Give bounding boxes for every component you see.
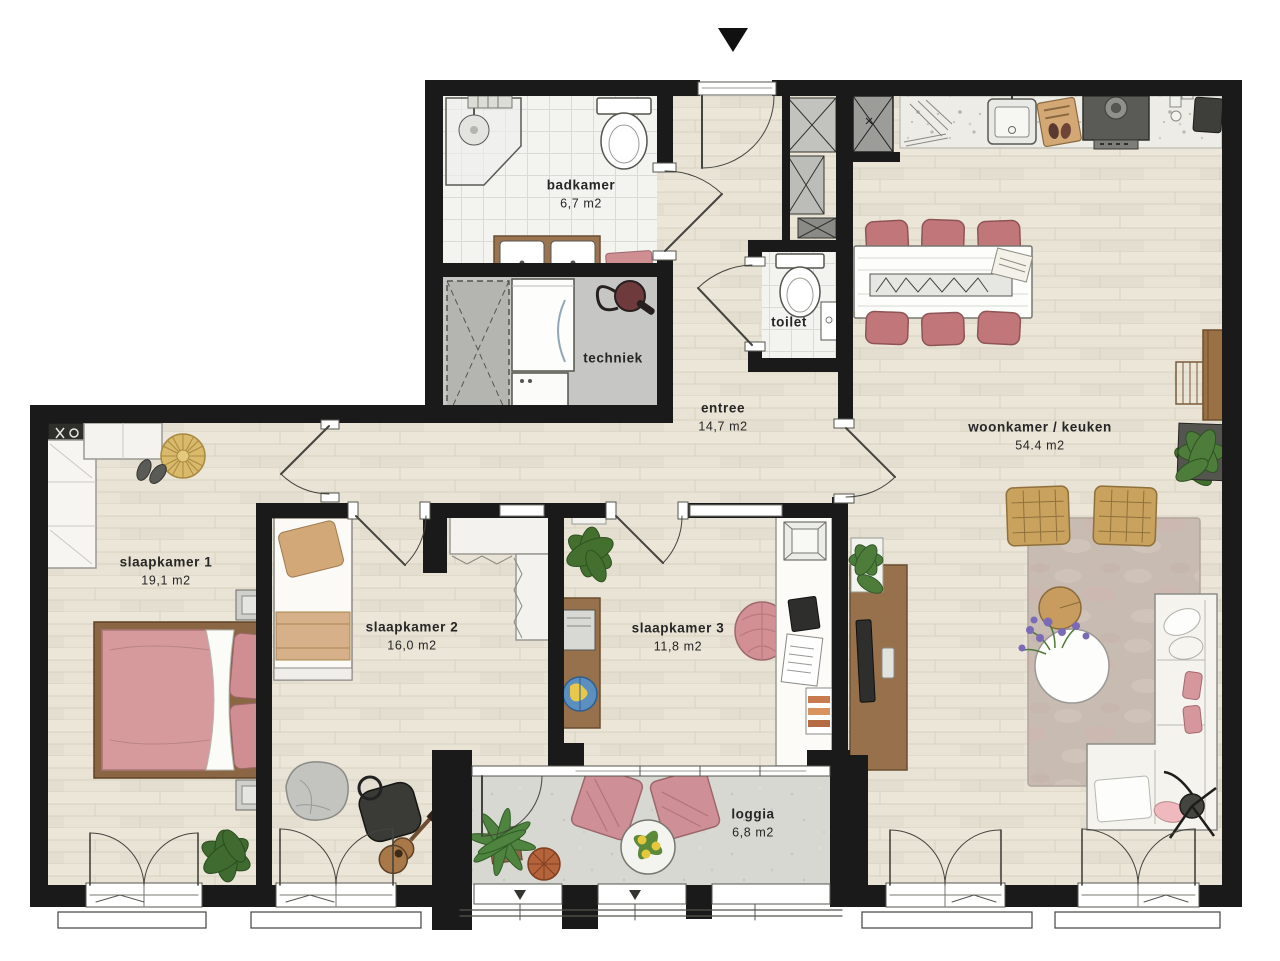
rattan-armchair-2 <box>1093 486 1157 546</box>
blanket <box>276 612 350 660</box>
bean-bag <box>286 762 348 820</box>
wall-top-right <box>772 80 1222 96</box>
wall-wing-top <box>30 405 673 423</box>
plant-by-desk <box>849 538 886 597</box>
floor-plan: badkamer 6,7 m2 techniek toilet entree 1… <box>0 0 1280 961</box>
wall-sk3-woonkamer <box>832 497 848 768</box>
globe <box>563 677 597 711</box>
laptop <box>788 596 820 632</box>
loggia-table <box>621 820 675 874</box>
entrance-arrow-icon <box>718 28 748 52</box>
sofa-blanket <box>1094 776 1151 823</box>
washing-machine <box>512 279 574 371</box>
wc-sink <box>821 302 837 340</box>
papers <box>781 634 823 686</box>
wall-toilet-bottom <box>748 358 853 372</box>
wall-sk1-sk2 <box>256 503 272 889</box>
towel-radiator <box>468 96 512 108</box>
single-bed <box>272 506 354 680</box>
pink-cushion-2 <box>1183 705 1203 734</box>
wall-badkamer-right-lower <box>657 253 673 423</box>
shelf-unit <box>806 688 832 734</box>
badkamer-toilet <box>597 98 651 169</box>
floor-plan-drawing <box>0 0 1280 961</box>
wall-badkamer-bottom <box>443 263 657 277</box>
side-desk <box>558 598 600 728</box>
wall-entree-woonkamer <box>836 96 853 372</box>
wall-toilet-top <box>748 240 838 252</box>
wc-bowl <box>780 267 820 317</box>
pouf <box>161 434 205 478</box>
workstation-desk <box>850 565 907 770</box>
wall-right <box>1222 80 1242 907</box>
wall-closet-left <box>782 96 790 240</box>
double-bed <box>94 622 270 778</box>
wall-badkamer-right-upper <box>657 96 673 170</box>
loggia-railing <box>460 884 842 920</box>
pillar-loggia-left <box>432 750 472 930</box>
shaft <box>447 281 509 419</box>
printer <box>563 610 595 650</box>
wall-left <box>30 423 48 907</box>
cutting-board <box>1037 97 1082 147</box>
wall-sk2-sk3 <box>548 503 564 771</box>
study-desk <box>776 516 832 766</box>
kitchen-shaft <box>853 96 900 162</box>
rattan-armchair-1 <box>1006 486 1070 546</box>
wall-top-left <box>425 80 700 96</box>
canvas-frame <box>784 522 826 560</box>
wall-badkamer-left <box>425 96 443 423</box>
balconies <box>58 912 1220 928</box>
pillar-loggia-right <box>830 755 868 907</box>
dining-set <box>854 219 1033 345</box>
coffee-table <box>1035 629 1109 703</box>
keyboard <box>882 648 894 678</box>
dining-chairs-bottom <box>865 311 1020 346</box>
pink-cushion-1 <box>1182 671 1203 700</box>
pouf-orange <box>528 848 560 880</box>
